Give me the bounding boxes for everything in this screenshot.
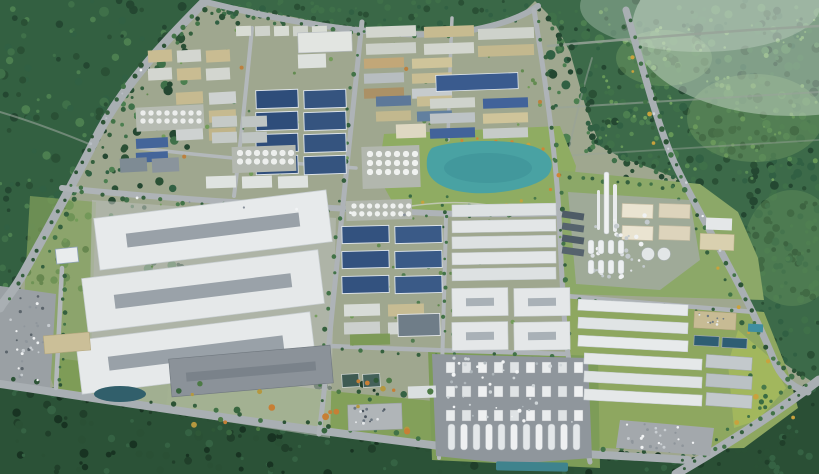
- east-plant-white-bldg: [706, 218, 732, 231]
- bldg-dark-tray-c: [398, 313, 441, 336]
- industrial-park-aerial-view: Industrial Park Master Plan - Aerial Ren…: [0, 0, 819, 474]
- office-tan-e: [43, 332, 90, 354]
- warehouse-rows-se-upper: [578, 299, 688, 352]
- treatment-basin-2: [722, 337, 747, 348]
- plant-stack-3: [597, 190, 600, 230]
- bldg-gray-se: [706, 354, 753, 408]
- factory-blue-long-b: [436, 73, 519, 92]
- plant-columns: [446, 362, 583, 421]
- bldg-cream-b7: [396, 123, 426, 138]
- pond-west: [94, 386, 146, 402]
- office-small-e: [55, 247, 78, 264]
- plant-stack-1: [604, 172, 609, 234]
- scene-svg: [0, 0, 819, 474]
- lake-depth: [444, 153, 532, 183]
- bldg-a-l-wing: [298, 54, 326, 69]
- warehouse-rows-d: [452, 203, 556, 281]
- silo-pad-c: [346, 199, 413, 221]
- east-plant-tan-bldg: [700, 233, 735, 250]
- plant-pond: [496, 461, 568, 471]
- greenhouse-c: [350, 333, 390, 345]
- warehouse-rows-se-lower: [584, 353, 702, 406]
- bldg-row-a12: [206, 175, 308, 188]
- clear-pool-se: [748, 324, 763, 333]
- tank-farm-pad-a: [135, 104, 204, 132]
- bldg-a-l-main: [298, 31, 353, 53]
- treatment-basin-1: [694, 335, 719, 346]
